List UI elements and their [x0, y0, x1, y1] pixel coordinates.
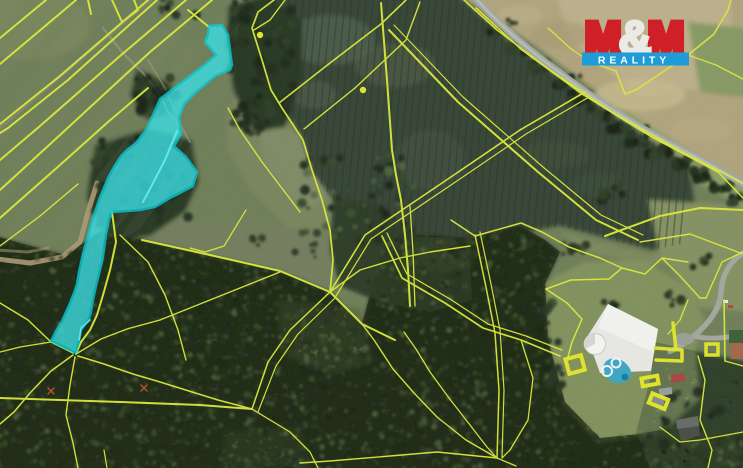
svg-text:REALITY: REALITY: [598, 55, 670, 67]
